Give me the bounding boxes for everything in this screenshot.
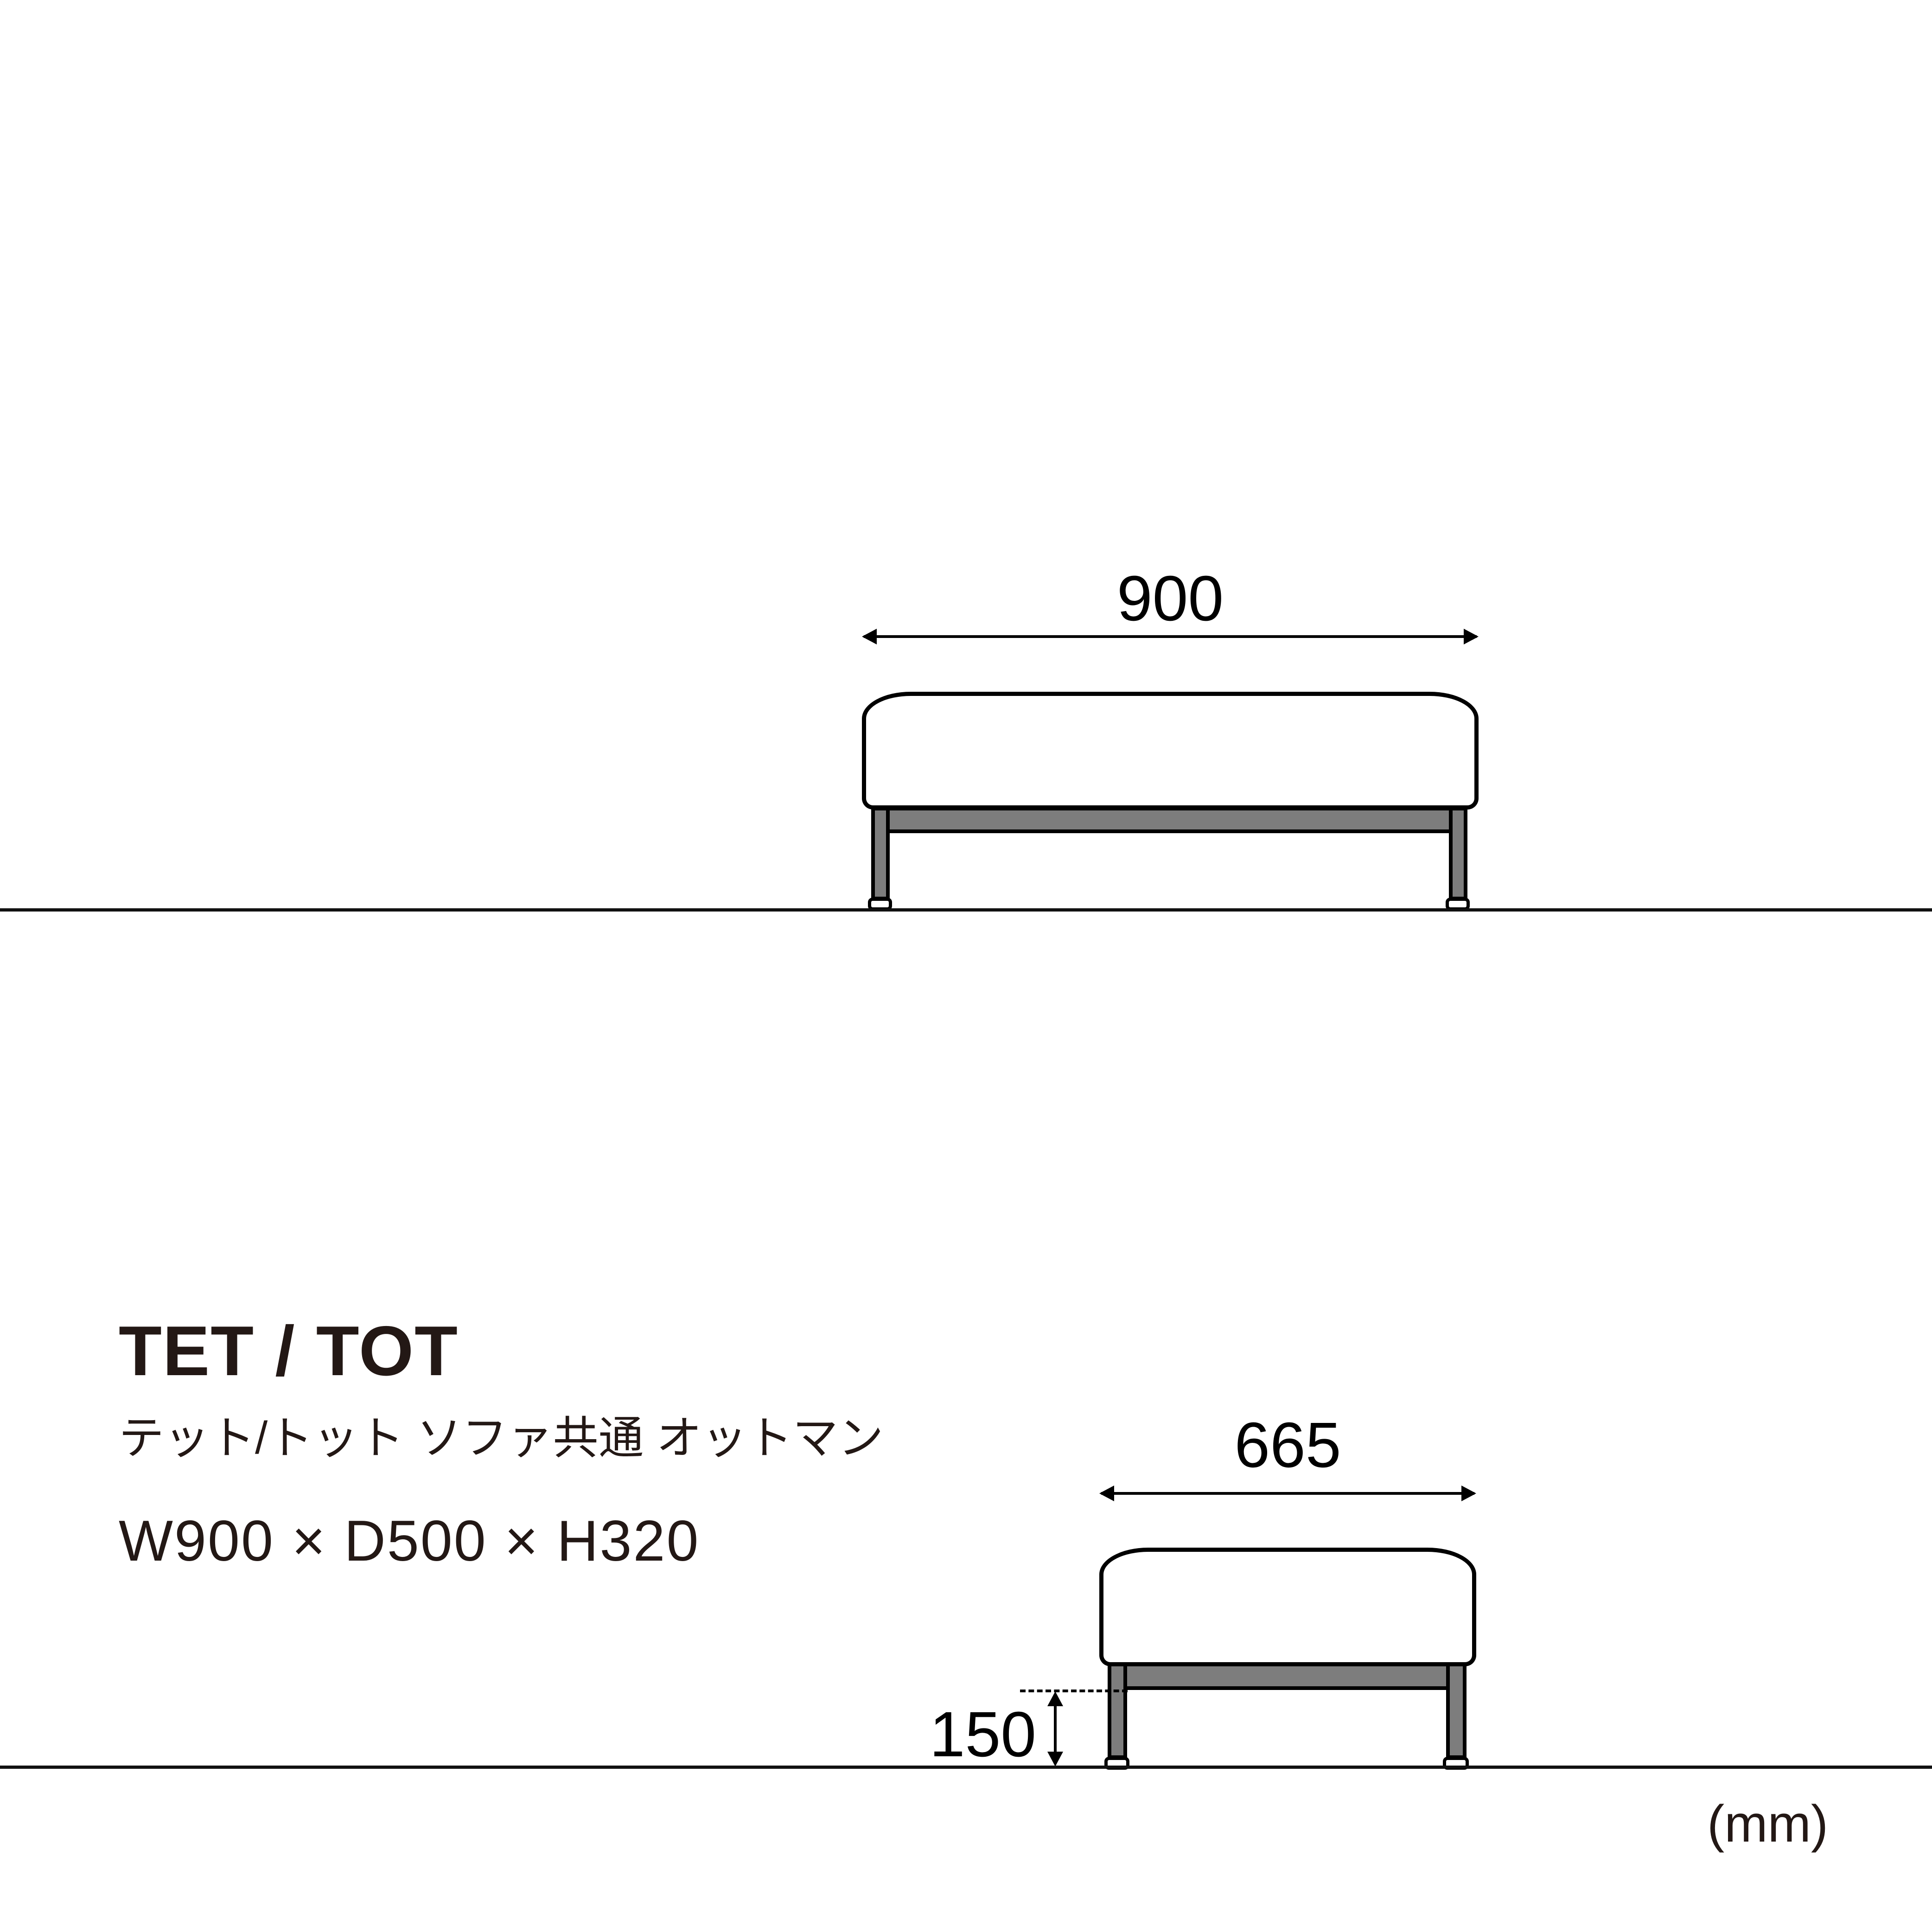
arrow-line [864,635,1477,638]
front-frame-rail [886,807,1453,833]
arrowhead-right-icon [1464,629,1479,644]
product-subtitle: テット/トット ソファ共通 オットマン [119,1415,953,1460]
arrow-line [1101,1492,1474,1495]
front-width-arrow [862,627,1479,646]
arrowhead-right-icon [1461,1486,1476,1501]
side-frame-height-label: 150 [920,1702,1036,1766]
side-ground-line [0,1766,1932,1769]
front-cushion [862,692,1479,810]
dimension-diagram-canvas: 900 665 [0,0,1932,1932]
side-width-label: 665 [1099,1413,1476,1477]
product-size-label: W900 × D500 × H320 [119,1512,953,1570]
front-view: 900 [0,0,1932,913]
side-frame-height-dashed-line [1020,1690,1128,1692]
arrowhead-down-icon [1047,1752,1063,1766]
side-frame-height-arrow [1046,1691,1065,1766]
side-width-arrow [1099,1484,1476,1503]
side-frame-rail [1123,1663,1450,1690]
front-width-label: 900 [862,567,1479,631]
product-title: TET / TOT [119,1316,953,1386]
side-cushion [1099,1548,1476,1666]
product-info: TET / TOT テット/トット ソファ共通 オットマン W900 × D50… [119,1316,953,1570]
unit-label: (mm) [1707,1798,1828,1850]
front-ground-line [0,908,1932,912]
